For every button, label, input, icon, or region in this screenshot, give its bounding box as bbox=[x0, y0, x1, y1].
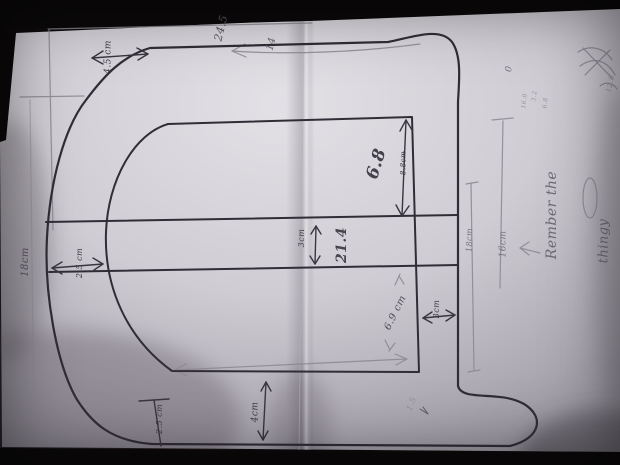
note-reminder-line2: thingy bbox=[598, 219, 611, 264]
dim-label-left-height: 18cm bbox=[21, 247, 31, 277]
dim-label-crossed-out: 8.8cm bbox=[401, 151, 408, 175]
dim-label-bottom-gap: 4cm bbox=[252, 402, 261, 423]
note-calc-line2: 3.2 bbox=[531, 90, 538, 102]
dim-label-center-value: 21.4 bbox=[335, 227, 349, 263]
note-reminder-line1: Rember the bbox=[545, 171, 559, 259]
pattern-drawing-canvas bbox=[0, 0, 620, 465]
note-calc-line3: 6.8 bbox=[542, 97, 549, 109]
dim-label-right-outer: 16cm bbox=[500, 230, 509, 257]
dim-label-band-width: 3cm bbox=[298, 229, 306, 248]
dim-label-right-gap: 3cm bbox=[433, 300, 441, 319]
note-zero-mark: 0 bbox=[505, 65, 515, 73]
dim-label-band-left-gap: 2.5 cm bbox=[76, 248, 84, 278]
photo-of-pattern-drawing: 24.5 14 4.5 cm 18cm 2.5 cm 3cm 21.4 6.8 … bbox=[0, 0, 620, 465]
dim-label-bottom-left-offset: 2.5 cm bbox=[156, 404, 164, 434]
dim-label-top-left-offset: 4.5 cm bbox=[105, 40, 114, 74]
dim-label-right-inner: 18cm bbox=[466, 228, 474, 252]
